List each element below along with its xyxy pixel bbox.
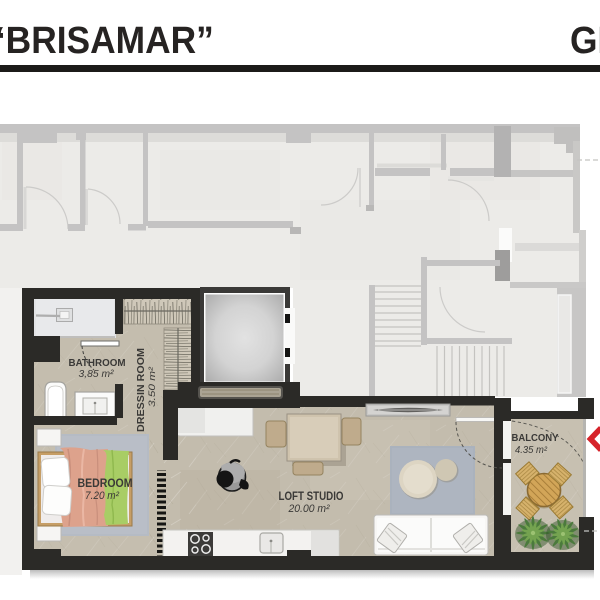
svg-text:BEDROOM: BEDROOM <box>78 478 133 490</box>
svg-text:DRESSIN ROOM: DRESSIN ROOM <box>135 348 147 432</box>
svg-text:20.00 m²: 20.00 m² <box>288 503 330 515</box>
svg-text:7.20 m²: 7.20 m² <box>85 490 119 502</box>
svg-text:3.50 m²: 3.50 m² <box>147 366 158 407</box>
svg-text:3,85 m²: 3,85 m² <box>79 368 114 380</box>
svg-text:BALCONY: BALCONY <box>512 432 559 444</box>
svg-text:LOFT STUDIO: LOFT STUDIO <box>279 491 344 503</box>
svg-text:4.35 m²: 4.35 m² <box>515 445 548 456</box>
